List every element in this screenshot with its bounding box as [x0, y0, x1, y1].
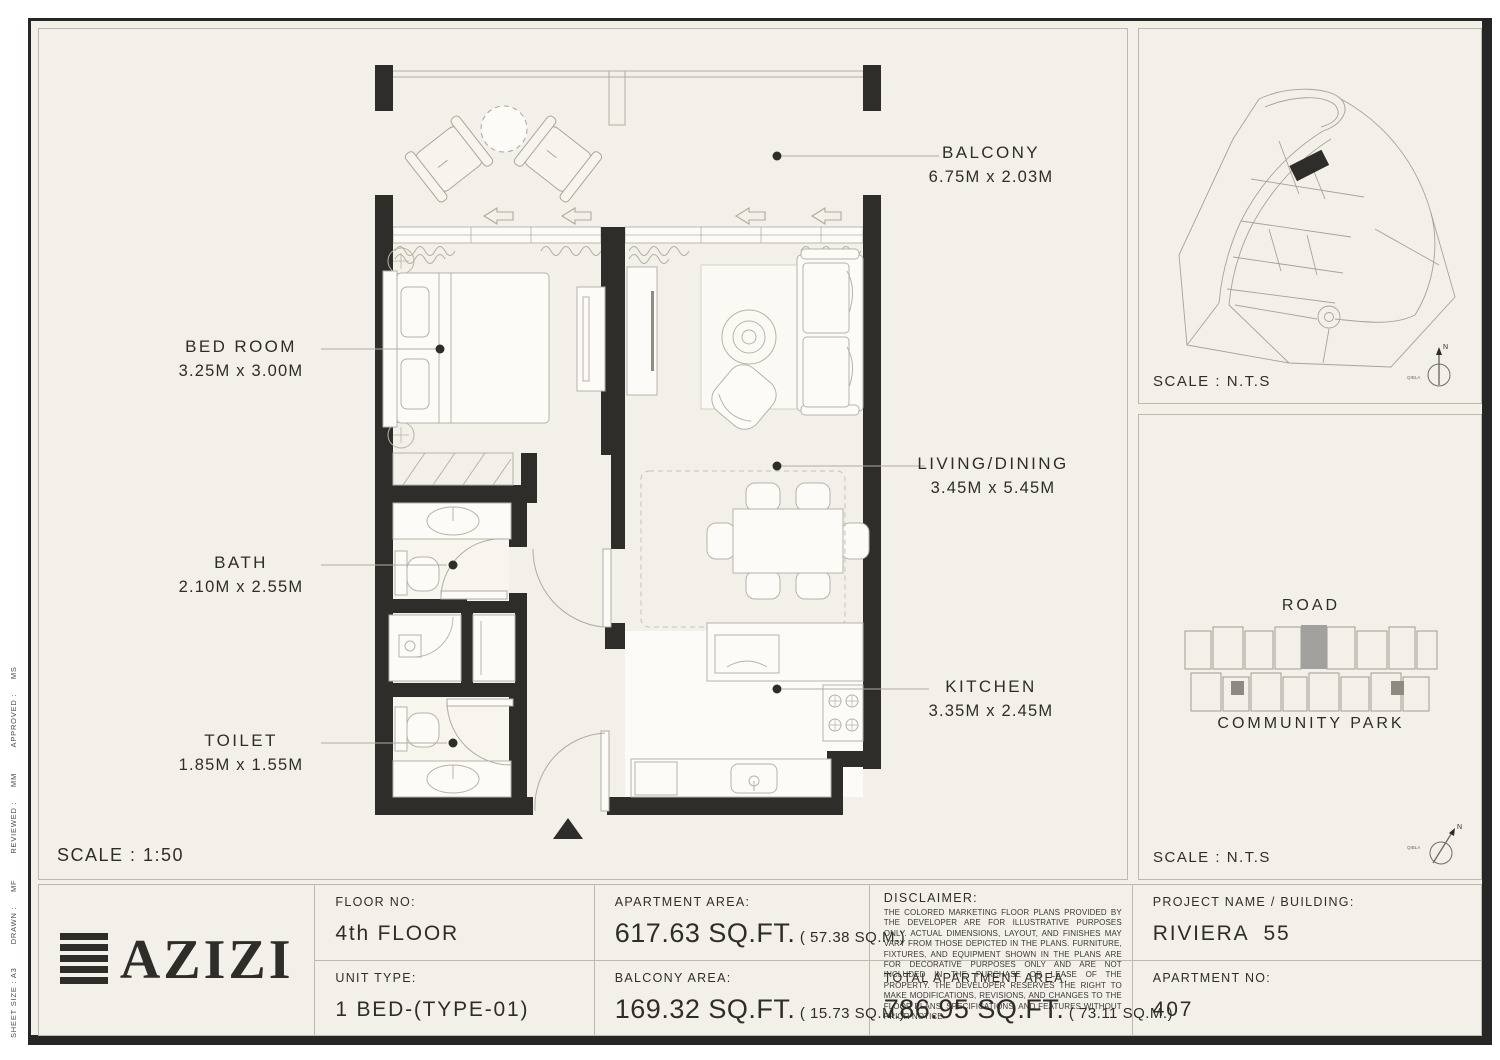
unit-type-cell: UNIT TYPE: 1 BED-(TYPE-01): [315, 960, 593, 1035]
location-scale-label: SCALE : N.T.S: [1153, 849, 1271, 866]
toilet-washbasin-icon: [393, 761, 511, 797]
main-scale-label: SCALE : 1:50: [57, 845, 184, 866]
apartment-no-cell: APARTMENT NO: 407: [1133, 960, 1481, 1035]
site-map-panel: N QIBLA SCALE : N.T.S: [1138, 28, 1482, 404]
drawing-sheet-frame: BALCONY 6.75M x 2.03M BED ROOM 3.25M x 3…: [28, 18, 1492, 1045]
closet-icon: [473, 615, 515, 681]
disclaimer-column: DISCLAIMER: THE COLORED MARKETING FLOOR …: [870, 885, 1133, 1035]
entrance-marker-icon: [553, 818, 583, 839]
shower-icon: [389, 615, 461, 681]
building-footprint-drawing: N QIBLA: [1139, 415, 1481, 879]
kitchen-sink-icon: [631, 759, 831, 797]
disclaimer-cell: DISCLAIMER: THE COLORED MARKETING FLOOR …: [870, 885, 1132, 960]
site-scale-label: SCALE : N.T.S: [1153, 373, 1271, 390]
core-block: [1231, 681, 1244, 695]
kitchen-counter-icon: [707, 623, 863, 681]
curtain-icon: [395, 247, 861, 264]
floor-plan-sheet: { "document": { "sheet_meta": "SHEET SIZ…: [0, 0, 1500, 1060]
bed-icon: [383, 248, 549, 448]
balcony-area-cell: BALCONY AREA: 169.32 SQ.FT. ( 15.73 SQ.M…: [595, 960, 869, 1035]
total-area-cell: TOTAL APARTMENT AREA: 786.95 SQ.FT. ( 73…: [870, 960, 1132, 1035]
slide-arrow-icon: [484, 208, 841, 224]
unit-highlight: [1301, 625, 1327, 669]
tv-unit-icon: [627, 267, 657, 395]
floor-no-cell: FLOOR NO: 4th FLOOR: [315, 885, 593, 960]
location-panel: N QIBLA ROAD COMMUNITY PARK SCALE : N.T.…: [1138, 414, 1482, 880]
compass-icon-tilted: N QIBLA: [1407, 824, 1462, 864]
area-column: APARTMENT AREA: 617.63 SQ.FT. ( 57.38 SQ…: [595, 885, 870, 1035]
room-label-bedroom: BED ROOM 3.25M x 3.00M: [156, 335, 326, 384]
azizi-logo-text: AZIZI: [120, 932, 294, 988]
window-band: [393, 227, 863, 243]
logo-cell: AZIZI: [39, 885, 315, 1035]
compass-icon: N QIBLA: [1407, 344, 1450, 386]
road-label: ROAD: [1225, 597, 1397, 615]
site-map-drawing: N QIBLA: [1139, 29, 1481, 403]
balcony-railing: [393, 71, 863, 125]
title-block: AZIZI FLOOR NO: 4th FLOOR UNIT TYPE: 1 B…: [38, 884, 1482, 1036]
floor-plan-panel: BALCONY 6.75M x 2.03M BED ROOM 3.25M x 3…: [38, 28, 1128, 880]
core-block: [1391, 681, 1404, 695]
room-label-kitchen: KITCHEN 3.35M x 2.45M: [901, 675, 1081, 724]
roundabout: [1318, 306, 1340, 328]
balcony-table-icon: [481, 106, 527, 152]
bath-washbasin-icon: [393, 503, 511, 539]
room-label-balcony: BALCONY 6.75M x 2.03M: [901, 141, 1081, 190]
site-roads: [1179, 89, 1455, 367]
project-column: PROJECT NAME / BUILDING: RIVIERA 55 APAR…: [1133, 885, 1481, 1035]
apartment-area-cell: APARTMENT AREA: 617.63 SQ.FT. ( 57.38 SQ…: [595, 885, 869, 960]
cooktop-icon: [823, 685, 863, 741]
sofa-icon: [797, 249, 863, 415]
room-label-toilet: TOILET 1.85M x 1.55M: [166, 729, 316, 778]
svg-text:N: N: [1443, 344, 1448, 351]
room-label-bath: BATH 2.10M x 2.55M: [166, 551, 316, 600]
community-park-label: COMMUNITY PARK: [1185, 715, 1437, 733]
sheet-meta-vertical-text: SHEET SIZE : A3 DRAWN : MF REVIEWED : MM…: [9, 666, 18, 1038]
svg-text:N: N: [1457, 824, 1462, 831]
dresser-icon: [393, 453, 513, 485]
svg-text:QIBLA: QIBLA: [1407, 375, 1420, 380]
floor-unit-column: FLOOR NO: 4th FLOOR UNIT TYPE: 1 BED-(TY…: [315, 885, 594, 1035]
svg-text:QIBLA: QIBLA: [1407, 845, 1420, 850]
project-name-cell: PROJECT NAME / BUILDING: RIVIERA 55: [1133, 885, 1481, 960]
azizi-bars-icon: [60, 933, 108, 988]
wardrobe-icon: [577, 287, 605, 391]
room-label-living-dining: LIVING/DINING 3.45M x 5.45M: [894, 452, 1092, 501]
